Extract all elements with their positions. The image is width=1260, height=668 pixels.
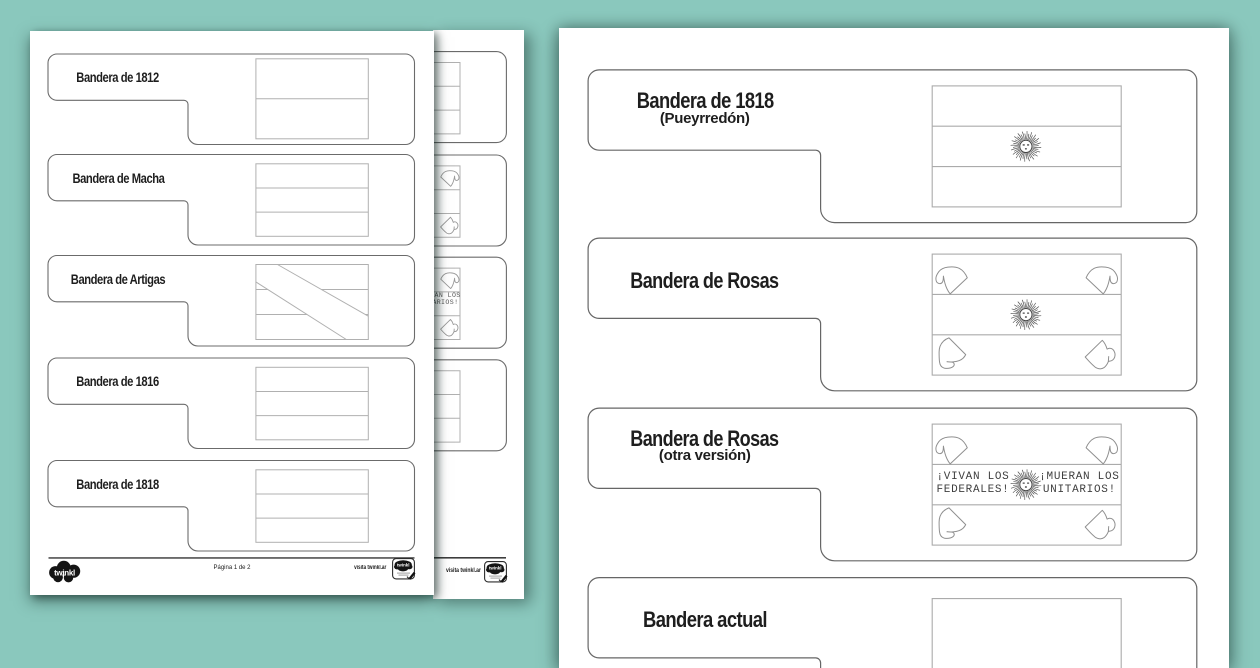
svg-text:twinkl: twinkl bbox=[397, 563, 409, 568]
svg-text:twinkl: twinkl bbox=[54, 568, 75, 577]
svg-text:twinkl: twinkl bbox=[489, 565, 501, 570]
